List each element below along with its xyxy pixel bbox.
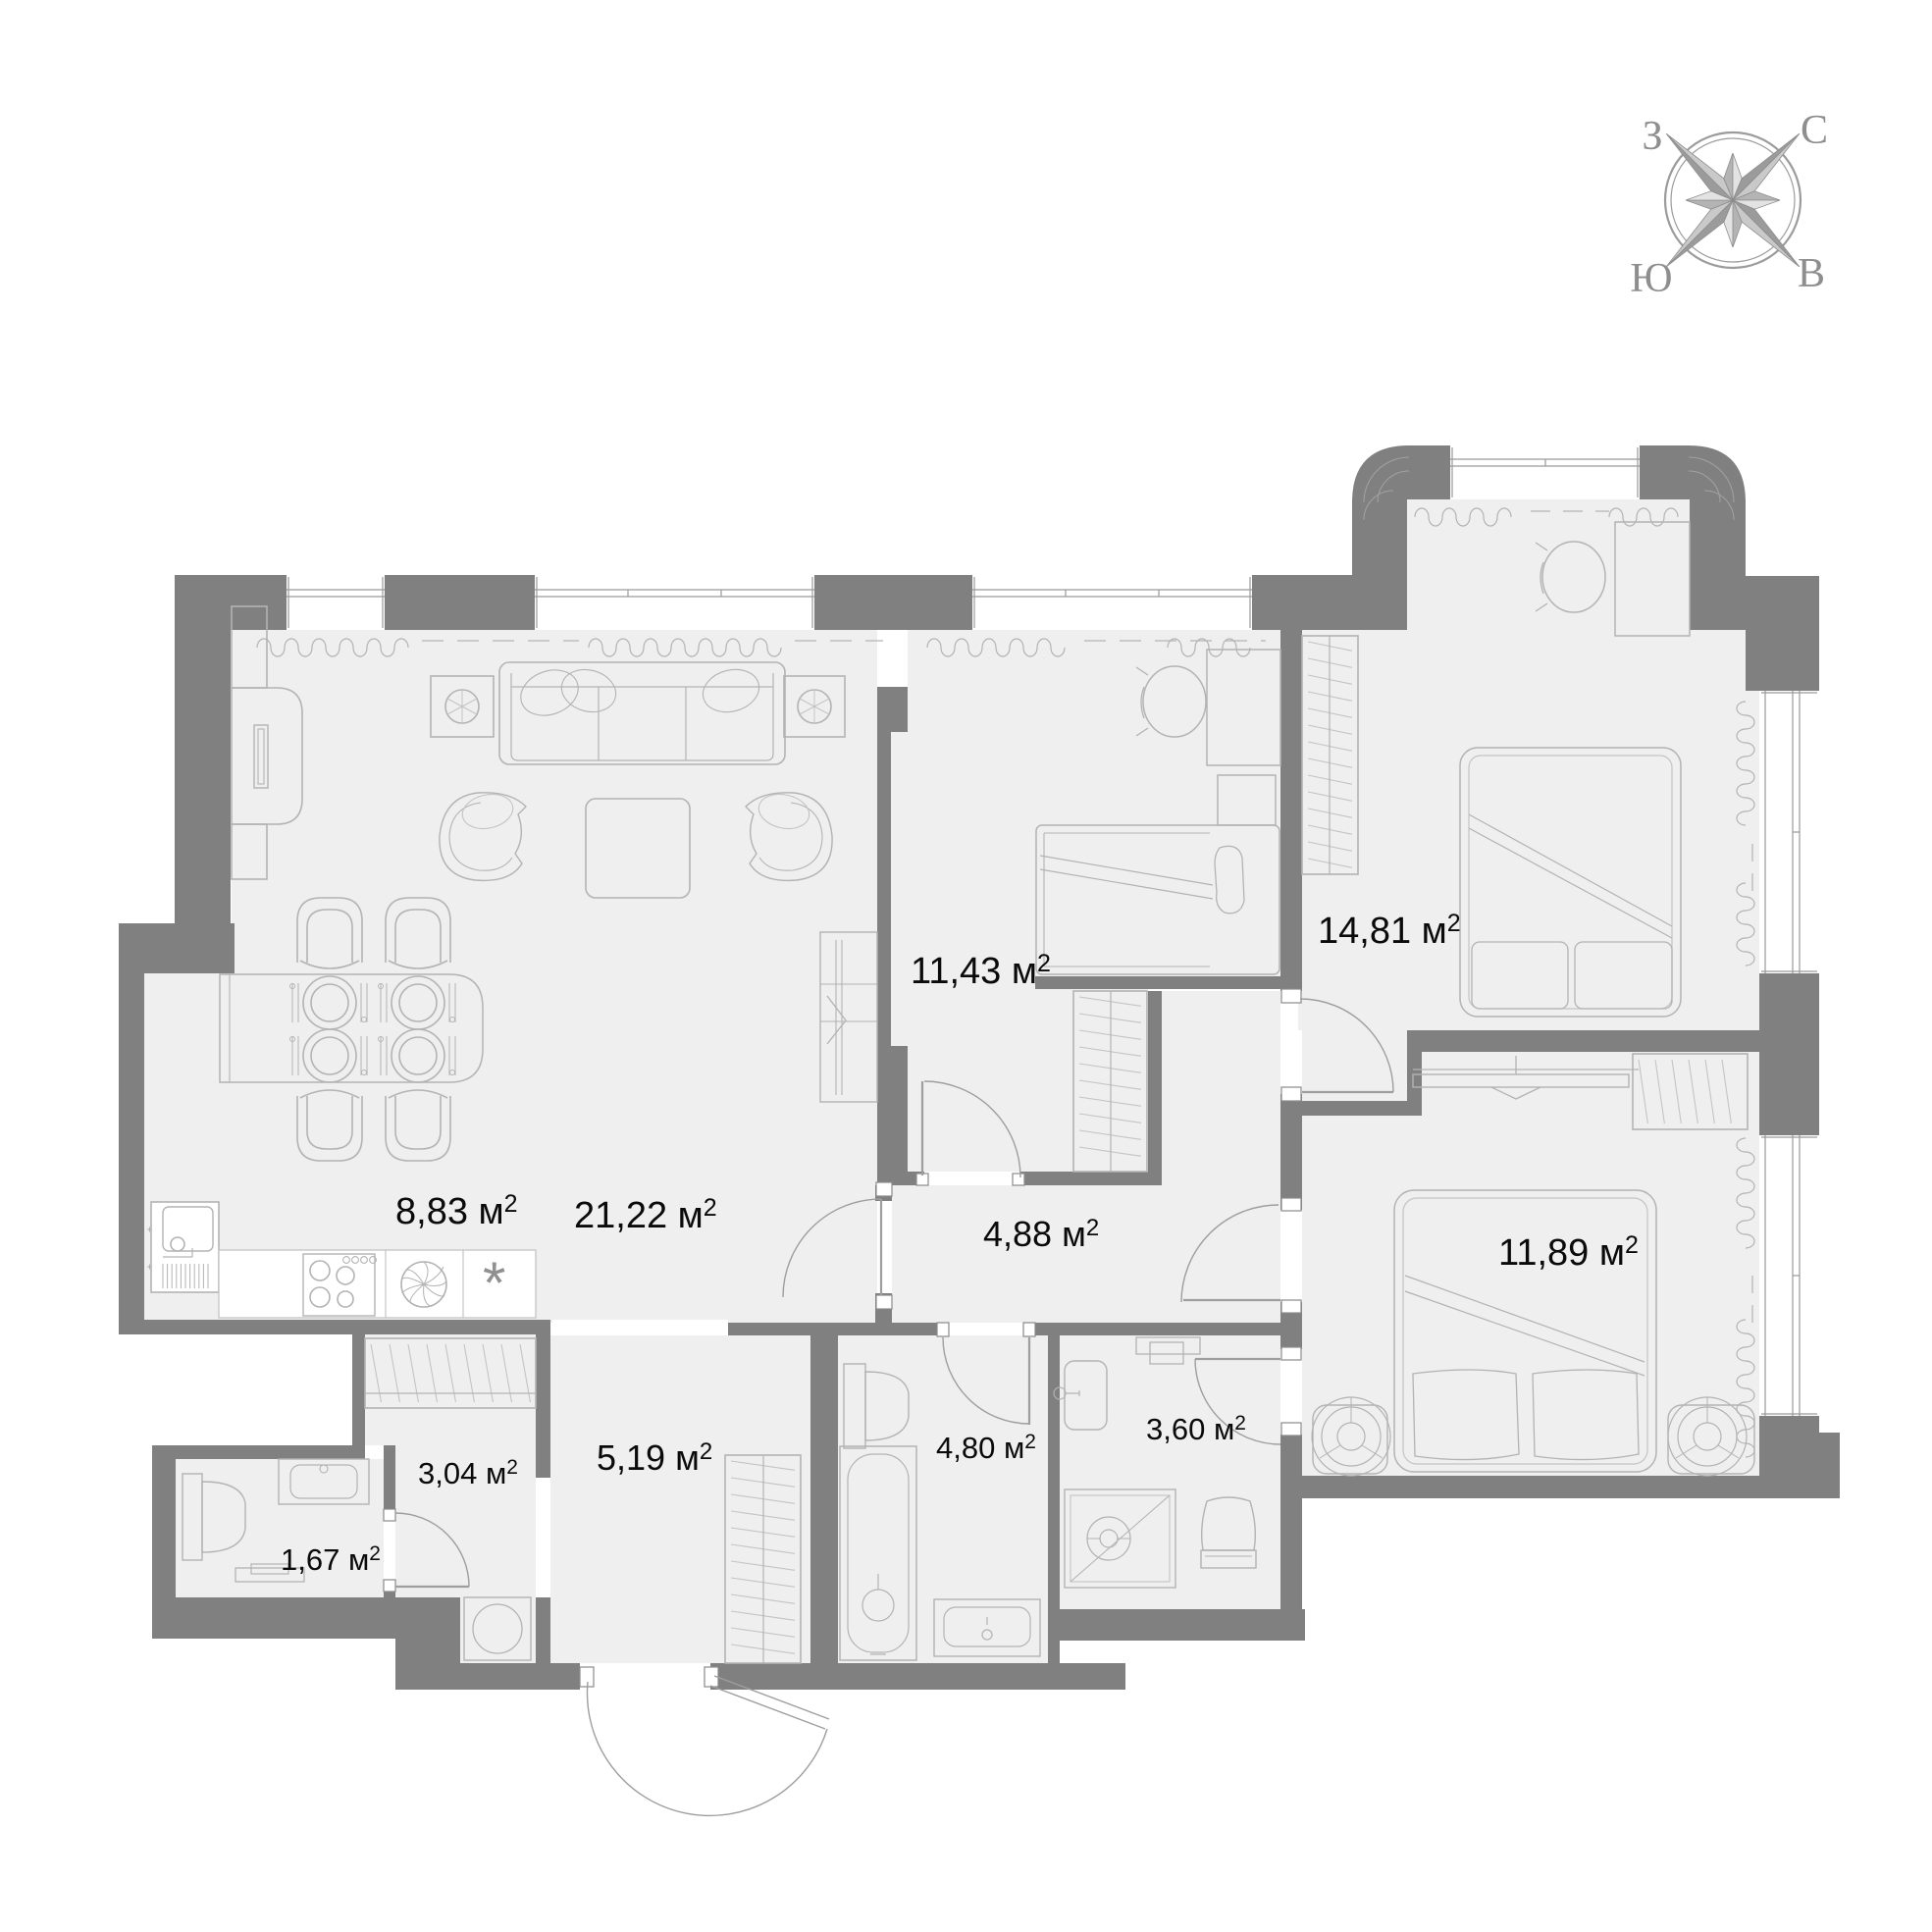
svg-text:11,89 м2: 11,89 м2 xyxy=(1498,1231,1639,1274)
svg-text:З: З xyxy=(1642,114,1662,159)
svg-text:3,60 м2: 3,60 м2 xyxy=(1146,1412,1246,1446)
svg-text:1,67 м2: 1,67 м2 xyxy=(281,1542,381,1577)
svg-text:8,83 м2: 8,83 м2 xyxy=(395,1190,518,1232)
svg-text:*: * xyxy=(483,1250,505,1316)
svg-text:14,81 м2: 14,81 м2 xyxy=(1318,910,1461,952)
svg-text:3,04 м2: 3,04 м2 xyxy=(418,1456,518,1490)
svg-text:С: С xyxy=(1801,108,1828,153)
svg-text:В: В xyxy=(1798,251,1825,296)
svg-text:5,19 м2: 5,19 м2 xyxy=(597,1437,712,1478)
svg-text:4,80 м2: 4,80 м2 xyxy=(936,1431,1036,1465)
svg-text:Ю: Ю xyxy=(1630,256,1672,301)
svg-text:4,88 м2: 4,88 м2 xyxy=(983,1214,1099,1254)
svg-text:21,22 м2: 21,22 м2 xyxy=(574,1194,717,1236)
svg-text:11,43 м2: 11,43 м2 xyxy=(911,950,1051,992)
